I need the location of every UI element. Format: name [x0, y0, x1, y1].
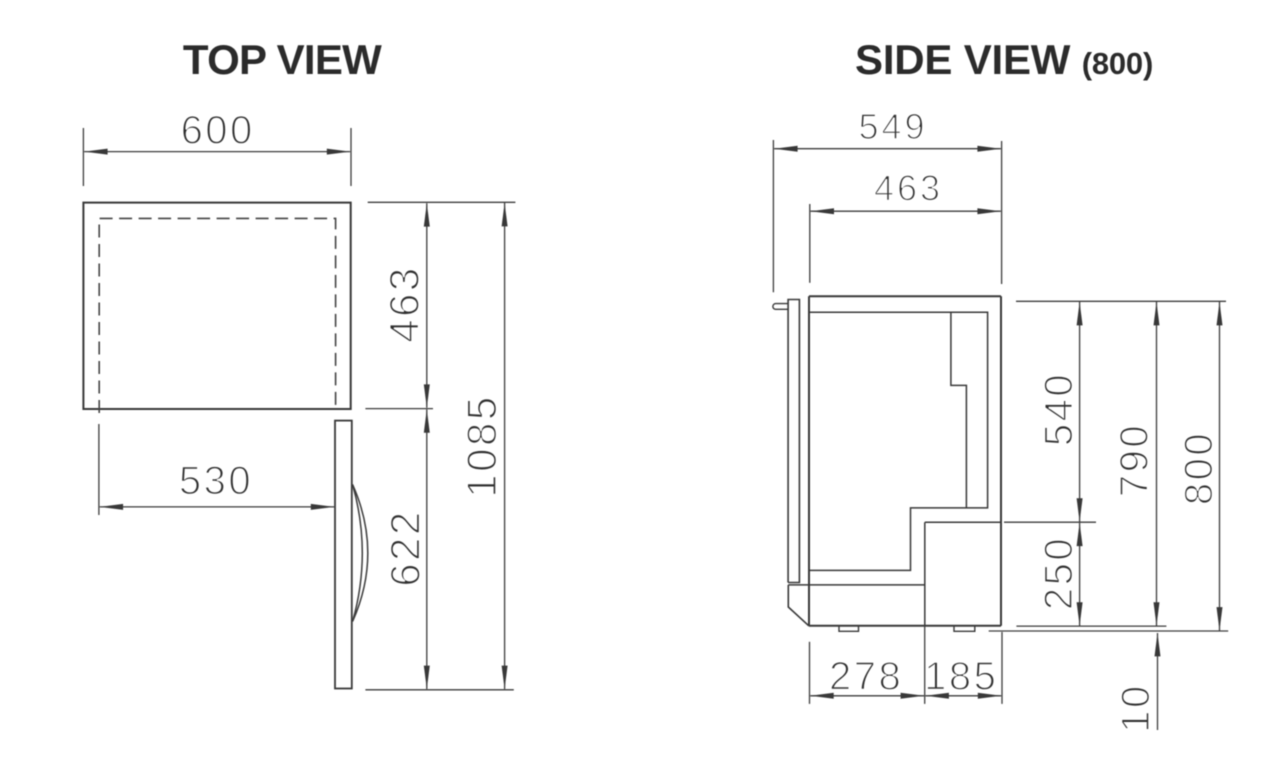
svg-text:600: 600	[181, 108, 255, 152]
svg-text:10: 10	[1114, 683, 1158, 733]
svg-text:278: 278	[829, 655, 903, 699]
svg-text:790: 790	[1113, 423, 1157, 497]
svg-text:250: 250	[1037, 536, 1081, 610]
svg-text:622: 622	[382, 509, 429, 587]
svg-text:185: 185	[924, 655, 998, 699]
svg-text:800: 800	[1177, 431, 1221, 505]
svg-text:SIDE VIEW (800): SIDE VIEW (800)	[855, 36, 1153, 83]
svg-text:TOP VIEW: TOP VIEW	[183, 36, 382, 83]
svg-text:463: 463	[874, 168, 943, 209]
svg-text:463: 463	[381, 265, 428, 343]
svg-text:540: 540	[1037, 372, 1081, 446]
svg-text:549: 549	[858, 106, 927, 147]
svg-text:530: 530	[179, 459, 253, 503]
svg-text:1085: 1085	[458, 394, 505, 497]
